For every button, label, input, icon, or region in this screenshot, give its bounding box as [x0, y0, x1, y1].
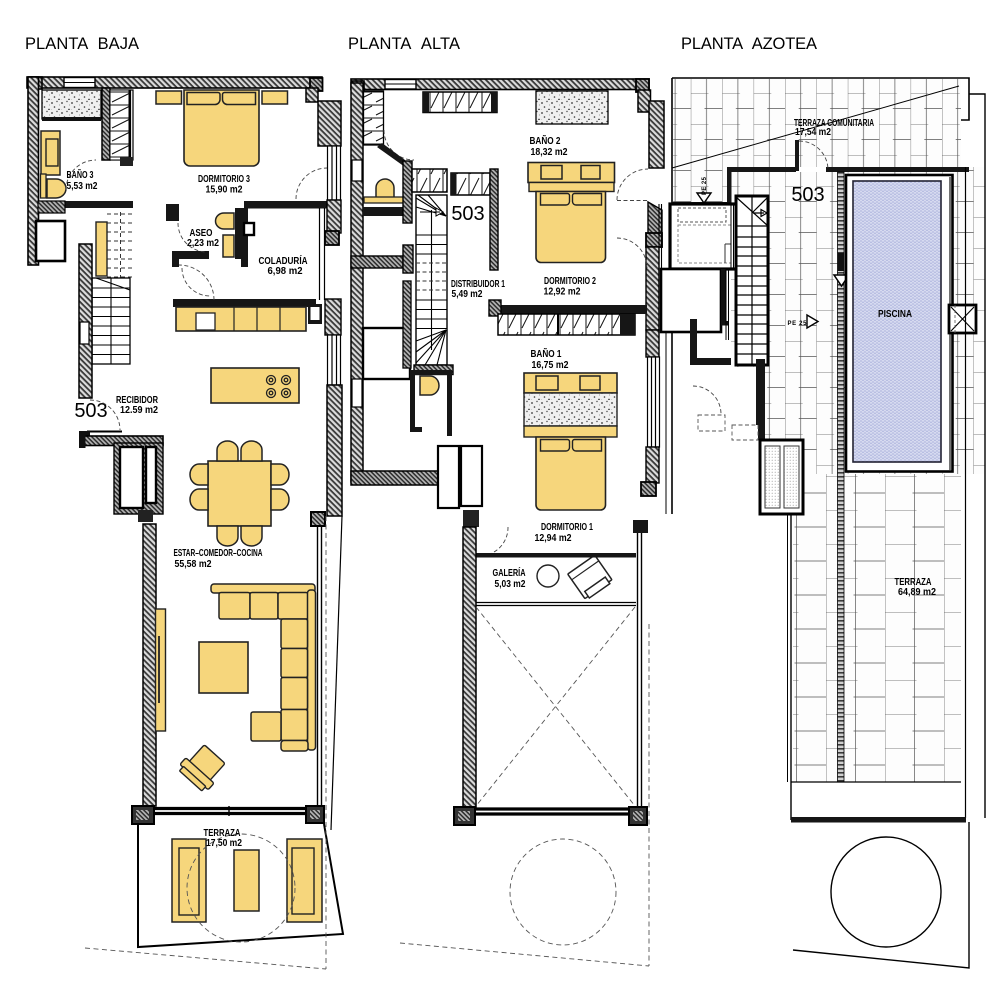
svg-text:64,89 m2: 64,89 m2 — [898, 586, 936, 598]
svg-text:PLANTA ALTA: PLANTA ALTA — [348, 35, 461, 53]
svg-text:17,50 m2: 17,50 m2 — [206, 837, 242, 849]
svg-text:5,53 m2: 5,53 m2 — [67, 180, 98, 192]
svg-text:PE 25: PE 25 — [788, 321, 808, 327]
svg-text:5,49 m2: 5,49 m2 — [452, 288, 483, 300]
svg-text:6,98 m2: 6,98 m2 — [268, 265, 303, 277]
svg-text:12,92 m2: 12,92 m2 — [544, 286, 581, 298]
svg-text:503: 503 — [451, 203, 484, 225]
svg-text:55,58 m2: 55,58 m2 — [175, 558, 212, 570]
svg-text:PLANTA BAJA: PLANTA BAJA — [25, 35, 140, 53]
svg-text:PLANTA AZOTEA: PLANTA AZOTEA — [681, 35, 818, 53]
svg-text:5,03 m2: 5,03 m2 — [495, 578, 526, 590]
svg-text:15,90 m2: 15,90 m2 — [206, 184, 243, 196]
svg-text:12,94 m2: 12,94 m2 — [535, 532, 572, 544]
svg-text:18,32 m2: 18,32 m2 — [531, 146, 568, 158]
svg-text:PE 25: PE 25 — [702, 176, 708, 195]
svg-text:PISCINA: PISCINA — [878, 308, 912, 320]
svg-text:17,54 m2: 17,54 m2 — [795, 126, 831, 138]
svg-text:503: 503 — [791, 184, 824, 206]
svg-text:16,75 m2: 16,75 m2 — [532, 359, 569, 371]
svg-text:12.59 m2: 12.59 m2 — [120, 404, 158, 416]
